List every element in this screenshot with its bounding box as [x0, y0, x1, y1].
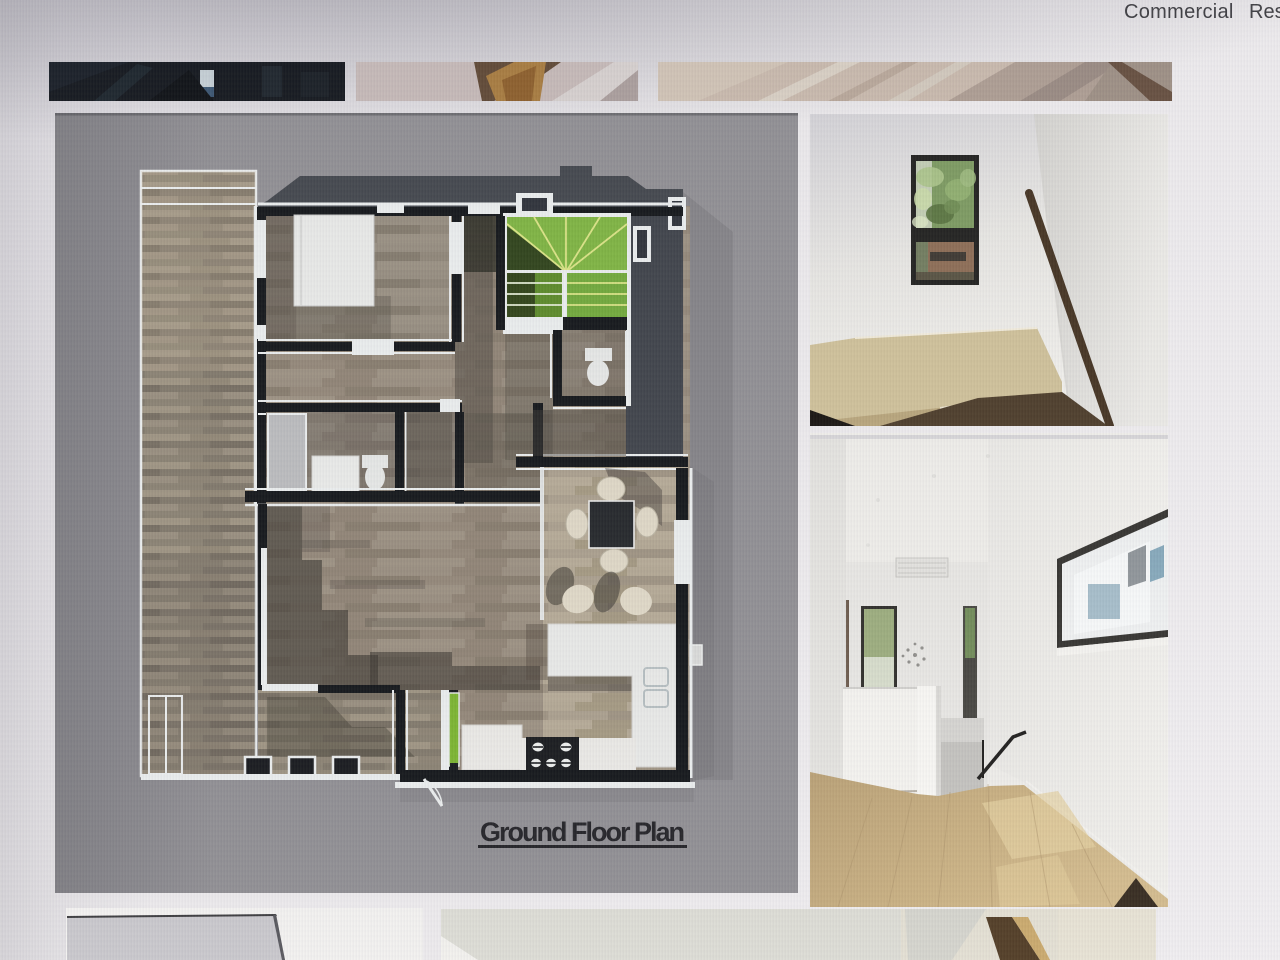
svg-text:Ground Floor Plan: Ground Floor Plan [480, 817, 685, 847]
